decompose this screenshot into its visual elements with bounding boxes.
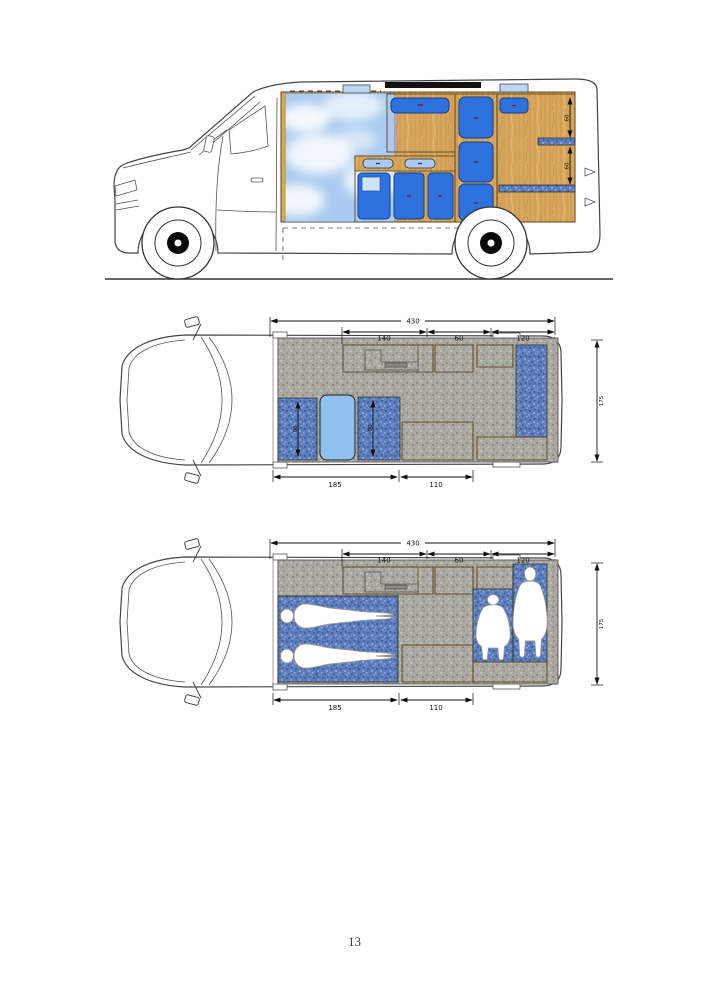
dim-lower-shelf: 60 [565,162,571,169]
dim-upper-shelf: 60 [565,114,571,121]
dim-seat-right: 90 [368,424,374,431]
front-wheel [142,207,214,279]
upper-berth-edge [538,138,575,145]
dim-galley: 140 [377,335,390,343]
dim-width: 175 [599,618,605,629]
dim-overall: 430 [406,540,419,548]
dim-seat-left: 90 [293,425,299,432]
interior-units: 60 60 [269,91,575,222]
dim-rear: 120 [516,335,529,343]
dim-bed: 185 [328,481,341,489]
dim-overall: 430 [406,318,419,326]
page-number: 13 [0,934,709,950]
rear-bench [516,345,547,437]
dim-kitchen: 110 [429,481,442,489]
dim-bed: 185 [328,704,341,712]
rear-wheel [455,207,527,279]
bench-seat [358,397,400,460]
plan-view-night-figure: 430 140 60 120 185 110 175 [105,532,615,732]
dim-width: 175 [599,395,605,406]
roof-rack [385,82,481,88]
main-bed [278,596,398,682]
wardrobe-column [455,94,497,222]
side-elevation-figure: 60 60 [105,58,615,293]
dim-mid: 60 [455,557,464,565]
dim-mid: 60 [455,335,464,343]
document-page: 60 60 [0,0,709,992]
plan-view-day-figure: 90 90 430 140 60 120 185 110 [105,310,615,510]
roof-vent [500,84,528,92]
roof-vent [343,85,370,93]
dim-kitchen: 110 [429,704,442,712]
lower-berth-edge [499,185,575,192]
dinette: 90 90 [278,395,400,460]
dim-galley: 140 [377,557,390,565]
kitchen-unit [355,156,455,222]
dim-rear: 120 [516,557,529,565]
table [320,395,355,460]
